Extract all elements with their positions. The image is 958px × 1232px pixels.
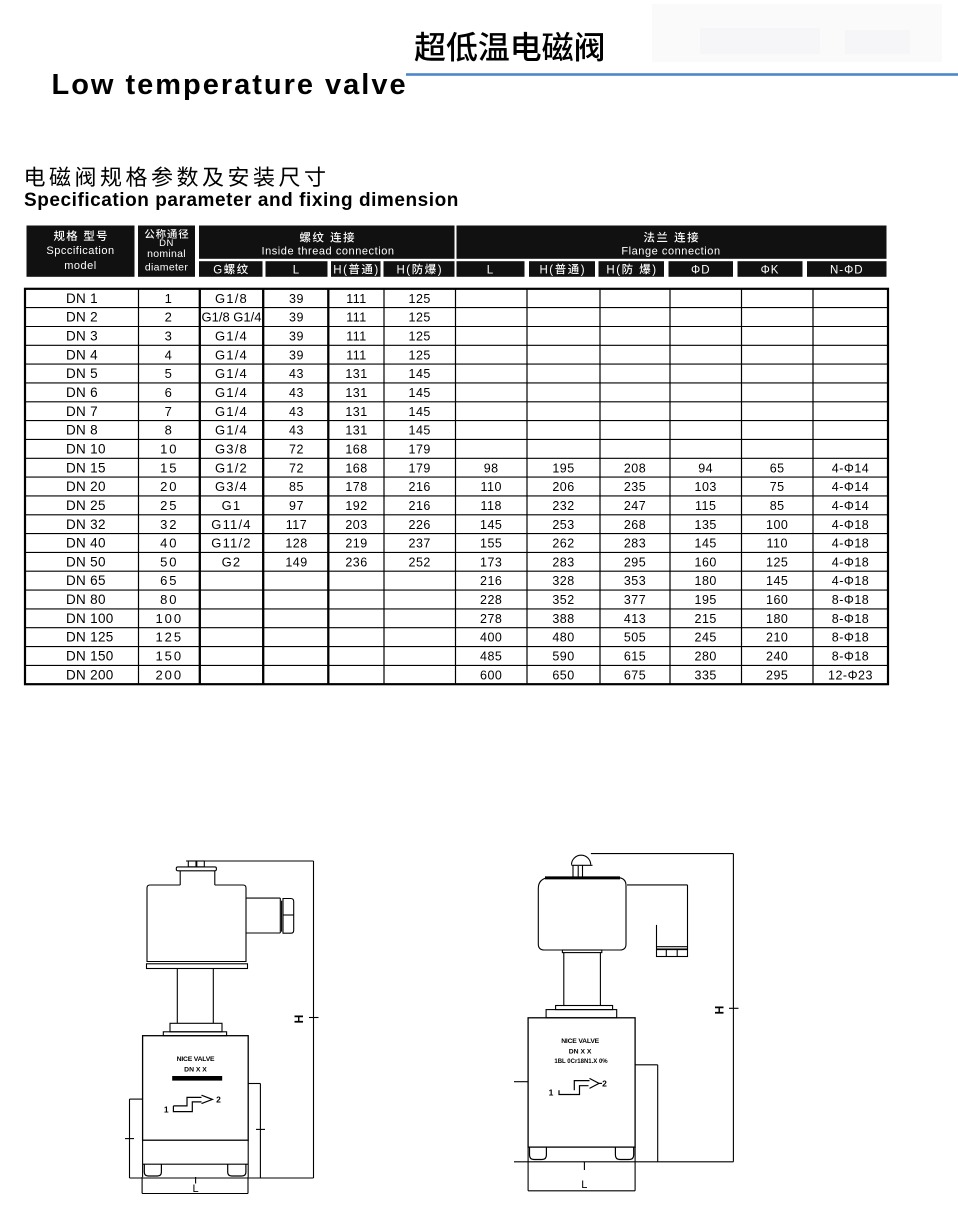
svg-text:145: 145 xyxy=(409,367,431,381)
svg-text:135: 135 xyxy=(695,518,717,532)
svg-text:94: 94 xyxy=(698,461,713,475)
svg-text:226: 226 xyxy=(409,518,431,532)
svg-text:4: 4 xyxy=(165,347,174,362)
svg-text:8-Φ18: 8-Φ18 xyxy=(832,631,870,645)
svg-text:100: 100 xyxy=(766,518,788,532)
svg-text:295: 295 xyxy=(624,555,646,569)
svg-text:160: 160 xyxy=(766,593,788,607)
svg-text:268: 268 xyxy=(624,518,646,532)
svg-text:25: 25 xyxy=(160,498,178,513)
svg-text:7: 7 xyxy=(165,404,174,419)
svg-text:DN 3: DN 3 xyxy=(66,329,98,344)
svg-text:H: H xyxy=(713,1006,727,1015)
svg-text:180: 180 xyxy=(766,612,788,626)
svg-text:NICE VALVE: NICE VALVE xyxy=(561,1038,599,1045)
svg-text:219: 219 xyxy=(345,537,367,551)
svg-text:DN X X: DN X X xyxy=(184,1066,207,1073)
svg-text:280: 280 xyxy=(695,650,717,664)
svg-text:278: 278 xyxy=(480,612,502,626)
svg-text:485: 485 xyxy=(480,650,502,664)
svg-text:236: 236 xyxy=(345,555,367,569)
svg-text:195: 195 xyxy=(695,593,717,607)
svg-text:85: 85 xyxy=(770,499,785,513)
svg-text:Inside thread connection: Inside thread connection xyxy=(261,246,394,258)
svg-text:8-Φ18: 8-Φ18 xyxy=(832,650,870,664)
svg-text:DN 40: DN 40 xyxy=(66,536,106,551)
svg-text:ΦK: ΦK xyxy=(761,264,780,276)
svg-text:195: 195 xyxy=(552,461,574,475)
svg-text:72: 72 xyxy=(289,442,304,456)
svg-text:DN 80: DN 80 xyxy=(66,592,106,607)
svg-text:39: 39 xyxy=(289,311,304,325)
svg-text:L: L xyxy=(293,264,300,276)
svg-text:600: 600 xyxy=(480,668,502,682)
svg-text:8: 8 xyxy=(165,423,174,438)
svg-text:DN 100: DN 100 xyxy=(66,611,114,626)
svg-text:128: 128 xyxy=(285,537,307,551)
svg-text:DN 65: DN 65 xyxy=(66,573,106,588)
svg-text:5: 5 xyxy=(165,366,174,381)
svg-text:32: 32 xyxy=(160,517,178,532)
svg-text:G1/4: G1/4 xyxy=(215,385,248,400)
svg-text:155: 155 xyxy=(480,537,502,551)
svg-text:590: 590 xyxy=(552,650,574,664)
svg-text:G1/4: G1/4 xyxy=(215,366,248,381)
svg-text:203: 203 xyxy=(345,518,367,532)
svg-text:480: 480 xyxy=(552,631,574,645)
svg-text:179: 179 xyxy=(409,461,431,475)
svg-text:400: 400 xyxy=(480,631,502,645)
svg-text:H(: H( xyxy=(397,264,412,276)
svg-text:ΦD: ΦD xyxy=(691,264,710,276)
svg-text:40: 40 xyxy=(160,536,178,551)
svg-text:nominal: nominal xyxy=(147,248,186,260)
svg-text:DN 2: DN 2 xyxy=(66,310,98,325)
svg-text:G1/8: G1/8 xyxy=(215,291,248,306)
svg-text:G3/8: G3/8 xyxy=(215,441,248,456)
svg-text:145: 145 xyxy=(409,405,431,419)
svg-text:12-Φ23: 12-Φ23 xyxy=(828,668,873,682)
svg-text:G1/4: G1/4 xyxy=(215,347,248,362)
svg-text:111: 111 xyxy=(346,330,367,344)
svg-text:H(: H( xyxy=(606,264,621,276)
svg-text:110: 110 xyxy=(480,480,501,494)
svg-text:G1/2: G1/2 xyxy=(215,460,248,475)
svg-text:253: 253 xyxy=(552,518,574,532)
svg-text:G2: G2 xyxy=(222,554,242,569)
svg-text:4-Φ18: 4-Φ18 xyxy=(832,518,870,532)
svg-text:G1/8 G1/4: G1/8 G1/4 xyxy=(202,310,262,325)
svg-text:125: 125 xyxy=(409,330,431,344)
svg-text:377: 377 xyxy=(624,593,646,607)
svg-text:G3/4: G3/4 xyxy=(215,479,248,494)
svg-text:168: 168 xyxy=(345,461,367,475)
svg-text:3: 3 xyxy=(165,329,174,344)
svg-text:DN 10: DN 10 xyxy=(66,441,106,456)
svg-text:H(: H( xyxy=(540,264,555,276)
svg-text:NICE VALVE: NICE VALVE xyxy=(177,1056,215,1063)
svg-text:DN 32: DN 32 xyxy=(66,517,106,532)
svg-text:10: 10 xyxy=(160,441,178,456)
svg-text:L: L xyxy=(192,1183,198,1195)
svg-text:G: G xyxy=(213,264,223,276)
svg-text:168: 168 xyxy=(345,442,367,456)
svg-text:283: 283 xyxy=(552,555,574,569)
svg-text:DN 15: DN 15 xyxy=(66,460,106,475)
svg-text:DN 8: DN 8 xyxy=(66,423,98,438)
svg-text:215: 215 xyxy=(695,612,717,626)
svg-text:15: 15 xyxy=(160,460,178,475)
svg-text:): ) xyxy=(581,264,586,276)
svg-text:111: 111 xyxy=(346,292,367,306)
svg-text:505: 505 xyxy=(624,631,646,645)
svg-text:65: 65 xyxy=(770,461,785,475)
svg-text:100: 100 xyxy=(155,611,183,626)
svg-text:DN 5: DN 5 xyxy=(66,366,98,381)
svg-text:240: 240 xyxy=(766,650,788,664)
svg-text:206: 206 xyxy=(552,480,574,494)
svg-text:Flange connection: Flange connection xyxy=(621,246,720,258)
svg-text:145: 145 xyxy=(695,537,717,551)
svg-text:): ) xyxy=(374,264,379,276)
svg-text:200: 200 xyxy=(155,667,183,682)
svg-text:DN 4: DN 4 xyxy=(66,347,98,362)
svg-text:DN 50: DN 50 xyxy=(66,554,106,569)
svg-text:247: 247 xyxy=(624,499,646,513)
svg-text:G1: G1 xyxy=(222,498,242,513)
svg-text:295: 295 xyxy=(766,668,788,682)
svg-text:diameter: diameter xyxy=(145,261,188,273)
svg-text:388: 388 xyxy=(552,612,574,626)
svg-text:8-Φ18: 8-Φ18 xyxy=(832,593,870,607)
svg-text:39: 39 xyxy=(289,330,304,344)
svg-text:43: 43 xyxy=(289,424,304,438)
svg-text:97: 97 xyxy=(289,499,304,513)
svg-text:DN 20: DN 20 xyxy=(66,479,106,494)
svg-text:DN 125: DN 125 xyxy=(66,630,114,645)
svg-text:111: 111 xyxy=(346,348,367,362)
svg-text:L: L xyxy=(581,1179,587,1191)
svg-text:216: 216 xyxy=(409,499,431,513)
svg-text:2: 2 xyxy=(165,310,174,325)
svg-text:DN 25: DN 25 xyxy=(66,498,106,513)
svg-text:H(: H( xyxy=(333,264,348,276)
svg-text:125: 125 xyxy=(409,292,431,306)
svg-text:353: 353 xyxy=(624,574,646,588)
svg-text:118: 118 xyxy=(480,499,501,513)
svg-text:4-Φ18: 4-Φ18 xyxy=(832,537,870,551)
svg-text:): ) xyxy=(652,264,657,276)
svg-text:283: 283 xyxy=(624,537,646,551)
svg-text:H: H xyxy=(292,1015,306,1024)
svg-text:G1/4: G1/4 xyxy=(215,329,248,344)
svg-text:1: 1 xyxy=(549,1088,554,1098)
svg-text:145: 145 xyxy=(409,386,431,400)
svg-text:125: 125 xyxy=(409,311,431,325)
svg-text:111: 111 xyxy=(346,311,367,325)
svg-text:43: 43 xyxy=(289,386,304,400)
svg-text:6: 6 xyxy=(165,385,174,400)
svg-text:262: 262 xyxy=(552,537,574,551)
svg-text:252: 252 xyxy=(409,555,431,569)
svg-text:1BL 0Cr18N1.X 0%: 1BL 0Cr18N1.X 0% xyxy=(554,1059,608,1065)
svg-text:Specification parameter and fi: Specification parameter and fixing dimen… xyxy=(24,190,459,211)
svg-text:131: 131 xyxy=(345,424,367,438)
svg-text:DN 1: DN 1 xyxy=(66,291,98,306)
svg-text:125: 125 xyxy=(155,630,183,645)
svg-text:1: 1 xyxy=(164,1105,169,1115)
svg-text:208: 208 xyxy=(624,461,646,475)
svg-text:103: 103 xyxy=(695,480,717,494)
svg-text:173: 173 xyxy=(480,555,502,569)
svg-text:DN 200: DN 200 xyxy=(66,667,114,682)
svg-text:145: 145 xyxy=(766,574,788,588)
svg-text:N-ΦD: N-ΦD xyxy=(830,264,864,276)
svg-text:131: 131 xyxy=(345,405,367,419)
svg-text:DN X X: DN X X xyxy=(569,1049,592,1056)
svg-text:4-Φ18: 4-Φ18 xyxy=(832,574,870,588)
svg-text:210: 210 xyxy=(766,631,788,645)
svg-text:model: model xyxy=(64,260,96,272)
svg-text:4-Φ14: 4-Φ14 xyxy=(832,480,870,494)
svg-text:110: 110 xyxy=(766,537,787,551)
svg-text:98: 98 xyxy=(484,461,499,475)
svg-text:4-Φ14: 4-Φ14 xyxy=(832,499,870,513)
svg-text:115: 115 xyxy=(695,499,716,513)
svg-text:131: 131 xyxy=(345,367,367,381)
svg-text:85: 85 xyxy=(289,480,304,494)
svg-text:235: 235 xyxy=(624,480,646,494)
svg-text:180: 180 xyxy=(695,574,717,588)
svg-text:650: 650 xyxy=(552,668,574,682)
svg-text:160: 160 xyxy=(695,555,717,569)
svg-text:65: 65 xyxy=(160,573,178,588)
svg-text:192: 192 xyxy=(345,499,367,513)
svg-text:L: L xyxy=(487,264,494,276)
svg-text:117: 117 xyxy=(286,518,307,532)
svg-text:335: 335 xyxy=(695,668,717,682)
svg-text:216: 216 xyxy=(409,480,431,494)
svg-text:328: 328 xyxy=(552,574,574,588)
svg-text:Spccification: Spccification xyxy=(46,245,114,257)
svg-text:80: 80 xyxy=(160,592,178,607)
svg-text:216: 216 xyxy=(480,574,502,588)
svg-text:125: 125 xyxy=(409,348,431,362)
svg-text:39: 39 xyxy=(289,348,304,362)
svg-text:DN 6: DN 6 xyxy=(66,385,98,400)
svg-text:179: 179 xyxy=(409,442,431,456)
svg-text:145: 145 xyxy=(480,518,502,532)
svg-text:150: 150 xyxy=(155,649,183,664)
svg-text:20: 20 xyxy=(160,479,178,494)
svg-text:43: 43 xyxy=(289,405,304,419)
svg-text:43: 43 xyxy=(289,367,304,381)
svg-text:G1/4: G1/4 xyxy=(215,423,248,438)
svg-text:2: 2 xyxy=(216,1095,221,1105)
svg-text:245: 245 xyxy=(695,631,717,645)
svg-text:675: 675 xyxy=(624,668,646,682)
svg-text:50: 50 xyxy=(160,554,178,569)
svg-text:228: 228 xyxy=(480,593,502,607)
svg-text:G11/2: G11/2 xyxy=(211,536,251,551)
svg-text:237: 237 xyxy=(409,537,431,551)
svg-text:75: 75 xyxy=(770,480,785,494)
svg-text:615: 615 xyxy=(624,650,646,664)
svg-text:125: 125 xyxy=(766,555,788,569)
svg-text:8-Φ18: 8-Φ18 xyxy=(832,612,870,626)
svg-text:72: 72 xyxy=(289,461,304,475)
svg-text:413: 413 xyxy=(624,612,646,626)
svg-text:DN 7: DN 7 xyxy=(66,404,98,419)
svg-text:G11/4: G11/4 xyxy=(211,517,251,532)
svg-text:145: 145 xyxy=(409,424,431,438)
svg-text:352: 352 xyxy=(552,593,574,607)
svg-text:149: 149 xyxy=(285,555,307,569)
svg-text:G1/4: G1/4 xyxy=(215,404,248,419)
svg-text:232: 232 xyxy=(552,499,574,513)
svg-text:4-Φ14: 4-Φ14 xyxy=(832,461,870,475)
svg-text:4-Φ18: 4-Φ18 xyxy=(832,555,870,569)
svg-text:Low temperature valve: Low temperature valve xyxy=(52,69,408,101)
svg-text:178: 178 xyxy=(345,480,367,494)
svg-text:2: 2 xyxy=(602,1079,607,1089)
svg-text:1: 1 xyxy=(165,291,174,306)
svg-text:39: 39 xyxy=(289,292,304,306)
svg-text:): ) xyxy=(438,264,443,276)
svg-text:DN 150: DN 150 xyxy=(66,649,114,664)
svg-text:131: 131 xyxy=(345,386,367,400)
